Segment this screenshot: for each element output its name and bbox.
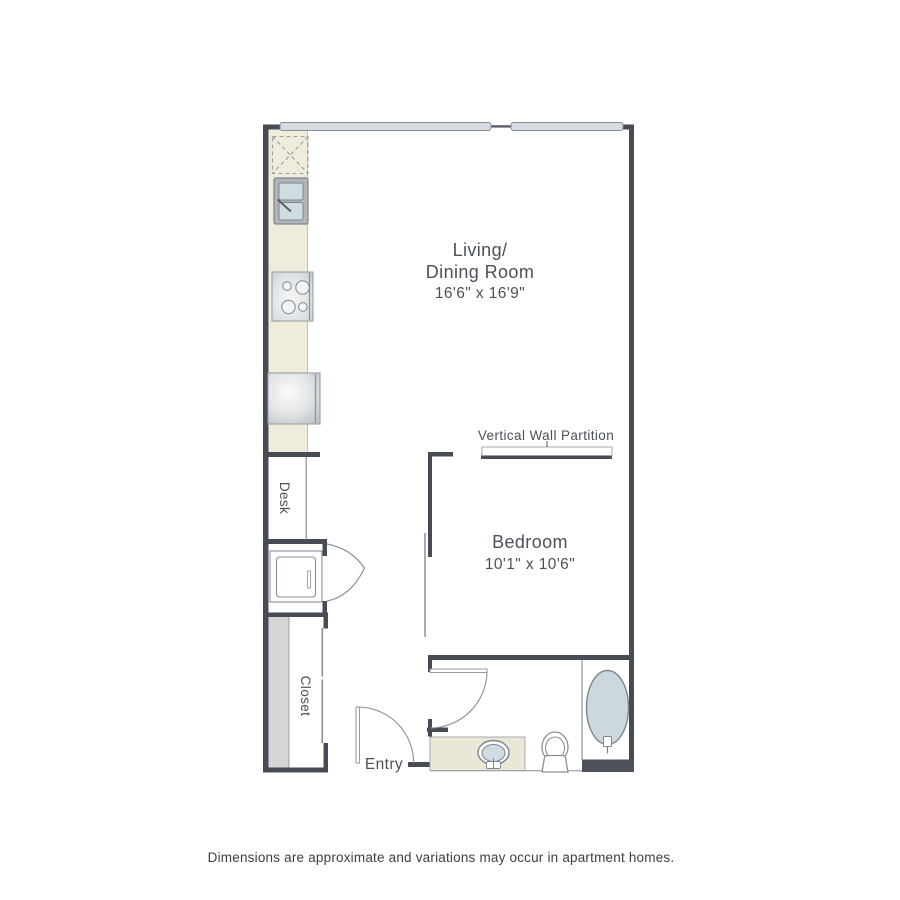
partition-bracket	[482, 447, 612, 456]
closet-bottom-right-stub	[324, 743, 329, 773]
window-band-left-icon	[280, 123, 491, 131]
kitchen-desk-divider-wall	[263, 452, 320, 457]
toilet-icon	[542, 732, 568, 772]
toilet-tank	[542, 756, 568, 773]
stove-cooktop-icon	[272, 272, 313, 321]
living-dining-label-line1: Living/	[453, 240, 508, 260]
bathroom-vanity	[430, 737, 525, 771]
closet-top-wall	[263, 613, 328, 618]
closet-top-right-stub	[324, 613, 329, 629]
wd-closet-right-stub	[323, 539, 328, 556]
floor-plan-drawing: Living/ Dining Room 16'6" x 16'9" Vertic…	[0, 0, 900, 900]
wd-closet-bottom-stub	[323, 601, 328, 613]
room-labels: Living/ Dining Room 16'6" x 16'9" Vertic…	[277, 240, 614, 773]
desk-label: Desk	[277, 482, 292, 514]
window-band-right-icon	[511, 123, 623, 131]
bathroom-top-wall	[428, 655, 634, 660]
living-dining-label-line2: Dining Room	[426, 262, 534, 282]
closet-bottom-wall	[263, 768, 328, 773]
bedroom-label: Bedroom	[492, 532, 568, 552]
bathroom-door-swing-arc	[430, 671, 487, 728]
tub-threshold	[582, 760, 634, 773]
closet-bifold-door-icon	[327, 544, 365, 601]
right-wall	[629, 125, 634, 772]
bathtub-icon	[587, 671, 629, 754]
entry-door-icon	[356, 707, 414, 763]
bathroom-door-leaf	[430, 669, 487, 673]
partition-label: Vertical Wall Partition	[478, 428, 614, 443]
floor-plan-page: Living/ Dining Room 16'6" x 16'9" Vertic…	[0, 0, 900, 900]
entry-label: Entry	[365, 756, 403, 773]
wd-closet-top-wall	[263, 539, 327, 544]
living-dining-dimensions: 16'6" x 16'9"	[435, 285, 525, 302]
closet-hanging-band	[268, 617, 289, 768]
bedroom-dimensions: 10'1" x 10'6"	[485, 556, 575, 573]
closet-label: Closet	[298, 676, 313, 717]
tub-faucet	[604, 737, 612, 747]
disclaimer-text: Dimensions are approximate and variation…	[208, 850, 675, 865]
utility-closet-appliance-icon	[270, 551, 322, 602]
bathroom-door-icon	[430, 669, 487, 728]
entry-door-swing-arc	[358, 707, 414, 763]
kitchen-double-sink-icon	[274, 178, 308, 224]
washer-dryer-icon	[268, 373, 320, 424]
entry-door-leaf	[356, 707, 360, 763]
left-wall	[263, 125, 269, 772]
appliance-door-handle	[308, 571, 311, 588]
bedroom-left-wall	[428, 452, 432, 557]
